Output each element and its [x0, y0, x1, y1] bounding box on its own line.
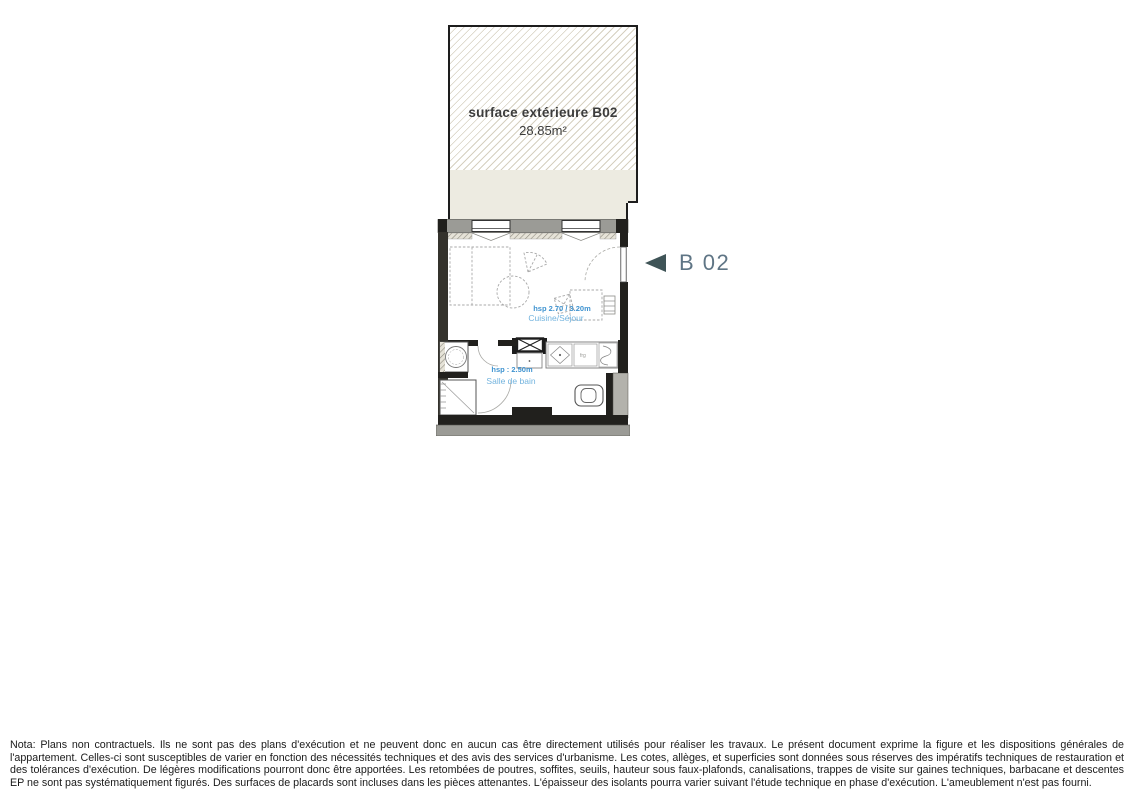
right-wall-top — [620, 233, 628, 247]
nota-disclaimer: Nota: Plans non contractuels. Ils ne son… — [10, 739, 1124, 789]
apartment-floor-plan: frg — [436, 218, 630, 436]
left-triangle-icon — [645, 254, 666, 272]
terrace-area-value: 28.85m² — [450, 123, 636, 138]
terrace-outline: surface extérieure B02 28.85m² — [448, 25, 638, 203]
terrace-hatched-area: surface extérieure B02 28.85m² — [450, 27, 636, 170]
toilet-side-wall — [606, 373, 613, 417]
main-room-name: Cuisine/Séjour — [494, 313, 618, 323]
unit-marker-label: B 02 — [679, 250, 730, 276]
terrace-title: surface extérieure B02 — [450, 105, 636, 120]
window-sill — [448, 233, 472, 239]
unit-marker: B 02 — [645, 250, 730, 276]
main-room-ceiling-height: hsp 2.70 / 3.20m — [500, 304, 624, 313]
toilet — [575, 385, 603, 406]
terrace-floor-strip — [450, 170, 636, 203]
duct-shaft — [517, 339, 543, 352]
wall-corner — [616, 219, 628, 233]
bath-partition — [498, 340, 517, 346]
terrace-extension — [448, 203, 628, 219]
technical-shaft — [613, 373, 628, 418]
window-sill — [600, 233, 616, 239]
window-sill — [510, 233, 562, 239]
right-wall-lower — [618, 340, 628, 373]
wall-corner — [438, 219, 447, 233]
terrace-border-step — [628, 201, 638, 203]
floor-plan-page: surface extérieure B02 28.85m² — [0, 0, 1133, 800]
bathroom-name: Salle de bain — [449, 376, 573, 386]
bottom-wall-band — [436, 425, 630, 436]
bathroom-ceiling-height: hsp : 2.50m — [450, 365, 574, 374]
terrace-label-block: surface extérieure B02 28.85m² — [450, 105, 636, 138]
fridge-label: frg — [580, 353, 586, 359]
